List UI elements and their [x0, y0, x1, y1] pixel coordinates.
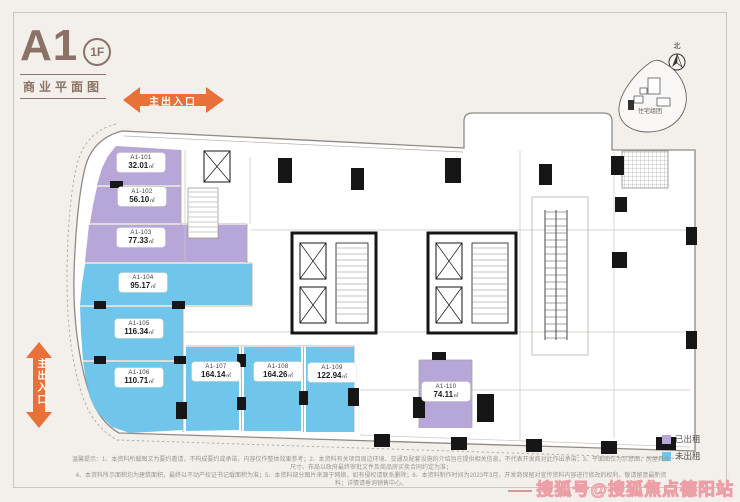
floorplan-page: A1 1F 商业平面图 主出入口 主出入口 北 住宅组团 A1-101 32.0… — [0, 0, 740, 502]
unit-area-value: 164.26 — [263, 370, 287, 379]
unit-area-value: 116.34 — [124, 327, 148, 336]
legend-label-vacant: 未出租 — [675, 450, 701, 462]
title-block: A1 1F 商业平面图 — [20, 26, 111, 99]
unit-label-a1-110: A1-110 74.11㎡ — [422, 382, 470, 401]
unit-label-a1-102: A1-102 56.10㎡ — [118, 187, 166, 206]
building-block-title: A1 — [20, 26, 78, 66]
watermark-text: 搜狐号@搜狐焦点德阳站 — [536, 480, 734, 499]
unit-label-a1-103: A1-103 77.33㎡ — [117, 228, 165, 247]
unit-label-a1-106: A1-106 110.71㎡ — [115, 368, 163, 387]
plan-subtitle: 商业平面图 — [20, 74, 106, 99]
floor-badge: 1F — [83, 38, 111, 66]
core-2-stair — [472, 243, 508, 323]
grid-hatch-area — [622, 151, 668, 188]
unit-area-unit: ㎡ — [149, 379, 154, 385]
legend-label-rented: 已出租 — [675, 433, 701, 445]
sitemap-blob — [619, 60, 686, 132]
unit-area-unit: ㎡ — [151, 284, 156, 290]
main-entrance-label-top: 主出入口 — [138, 93, 208, 108]
unit-area-unit: ㎡ — [226, 373, 231, 379]
legend-swatch-rented — [662, 435, 671, 444]
unit-area-a1-107 — [186, 347, 239, 431]
watermark: 搜狐号@搜狐焦点德阳站 — [508, 475, 734, 500]
unit-label-a1-108: A1-108 164.26㎡ — [254, 362, 302, 381]
main-entrance-label-left: 主出入口 — [33, 358, 48, 414]
unit-label-a1-105: A1-105 116.34㎡ — [115, 319, 163, 338]
watermark-line — [508, 490, 532, 492]
unit-area-unit: ㎡ — [454, 393, 459, 399]
unit-area-value: 74.11 — [433, 390, 453, 399]
unit-area-a1-109 — [306, 347, 354, 432]
unit-label-a1-104: A1-104 95.17㎡ — [119, 273, 167, 292]
compass-north-label: 北 — [671, 41, 683, 51]
unit-area-value: 56.10 — [129, 195, 149, 204]
legend-item-rented: 已出租 — [662, 433, 701, 445]
unit-area-unit: ㎡ — [342, 374, 347, 380]
unit-area-value: 32.01 — [128, 161, 148, 170]
unit-area-value: 77.33 — [128, 236, 148, 245]
unit-area-a1-103 — [85, 225, 247, 262]
unit-area-value: 122.94 — [317, 371, 341, 380]
unit-area-unit: ㎡ — [150, 198, 155, 204]
disclaimer-line-1: 温馨提示：1、本资料所载图文为要约邀请，不构成要约或承诺，内容仅作整体效果参考；… — [72, 456, 670, 472]
sitemap-label: 住宅组团 — [629, 106, 671, 115]
unit-area-value: 164.14 — [201, 370, 225, 379]
unit-area-unit: ㎡ — [288, 373, 293, 379]
unit-label-a1-101: A1-101 32.01㎡ — [117, 153, 165, 172]
stairs-upper-left — [188, 188, 218, 238]
unit-area-unit: ㎡ — [149, 239, 154, 245]
unit-label-a1-107: A1-107 164.14㎡ — [192, 362, 240, 381]
unit-label-a1-109: A1-109 122.94㎡ — [308, 363, 356, 382]
core-1-stair — [336, 243, 368, 323]
unit-area-unit: ㎡ — [149, 330, 154, 336]
unit-area-unit: ㎡ — [149, 164, 154, 170]
unit-area-value: 95.17 — [130, 281, 150, 290]
unit-area-value: 110.71 — [124, 376, 148, 385]
unit-area-a1-108 — [244, 347, 301, 431]
